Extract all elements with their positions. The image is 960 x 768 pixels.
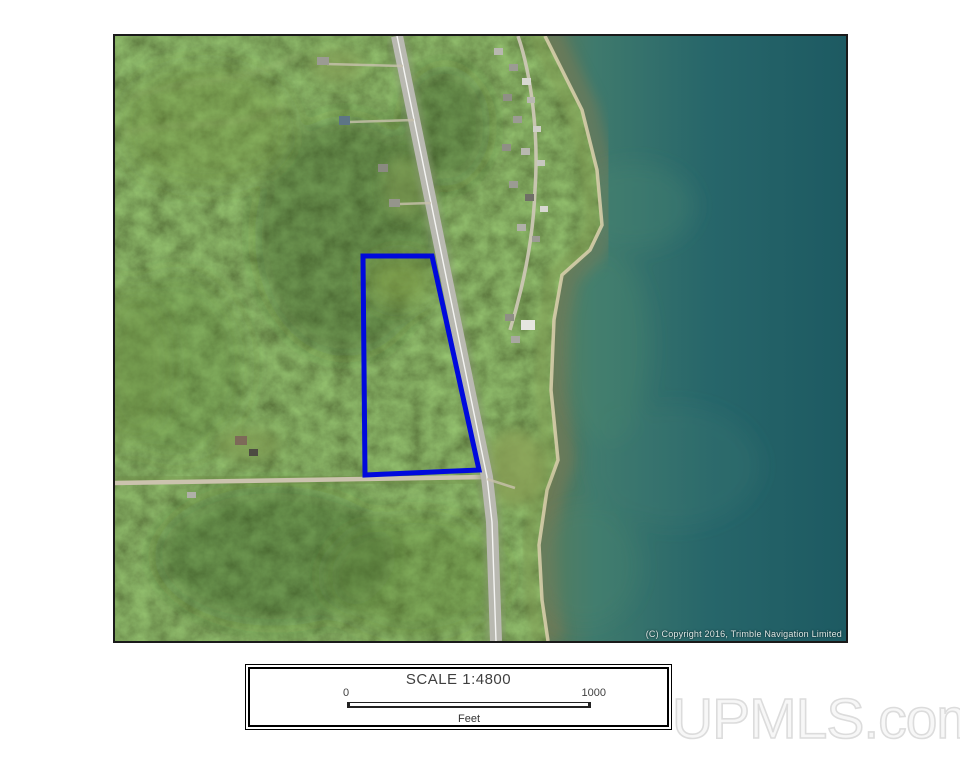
scale-bar-start-label: 0: [343, 687, 349, 699]
scale-panel-inner-border: SCALE 1:4800 0 1000 Feet: [248, 667, 669, 727]
watermark-logo: UPMLS.com: [672, 686, 960, 752]
aerial-photo: [115, 36, 846, 641]
scale-bar-end-label: 1000: [582, 687, 606, 699]
scale-bar: [347, 702, 591, 708]
scale-unit-label: Feet: [347, 713, 591, 725]
copyright-notice: (C) Copyright 2016, Trimble Navigation L…: [646, 629, 842, 639]
scale-bar-wrap: 0 1000 Feet: [347, 702, 591, 710]
scale-panel: SCALE 1:4800 0 1000 Feet: [245, 664, 672, 730]
scale-title: SCALE 1:4800: [250, 671, 667, 688]
map-frame: (C) Copyright 2016, Trimble Navigation L…: [113, 34, 848, 643]
listing-map-page: (C) Copyright 2016, Trimble Navigation L…: [0, 0, 960, 768]
